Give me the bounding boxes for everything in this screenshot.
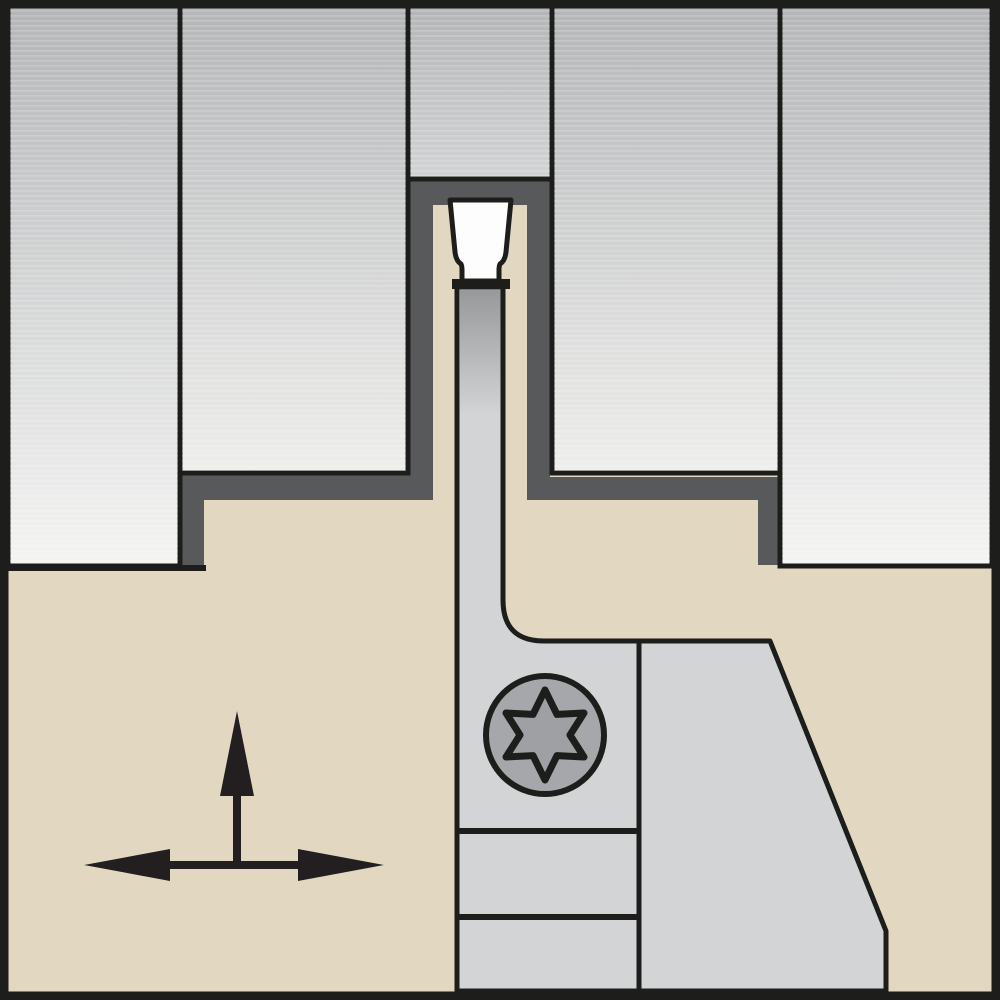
- groove-profile-right-floor: [545, 477, 760, 500]
- slot-shading: [460, 290, 501, 415]
- arrow-horizontal-bar: [162, 861, 308, 869]
- striation-overlay: [182, 8, 406, 471]
- grooving-tool-diagram: [0, 0, 1000, 1000]
- arrow-up-stem: [233, 793, 241, 867]
- groove-profile-right-wall: [527, 179, 550, 500]
- striation-overlay: [10, 8, 178, 564]
- striation-overlay: [554, 8, 778, 471]
- groove-profile-left-wall: [408, 179, 433, 500]
- striation-overlay: [782, 8, 990, 564]
- clamp-screw: [486, 676, 604, 794]
- striation-overlay: [410, 8, 550, 177]
- groove-profile-left-floor: [177, 475, 433, 500]
- tool-diagram-stage: [0, 0, 1000, 1000]
